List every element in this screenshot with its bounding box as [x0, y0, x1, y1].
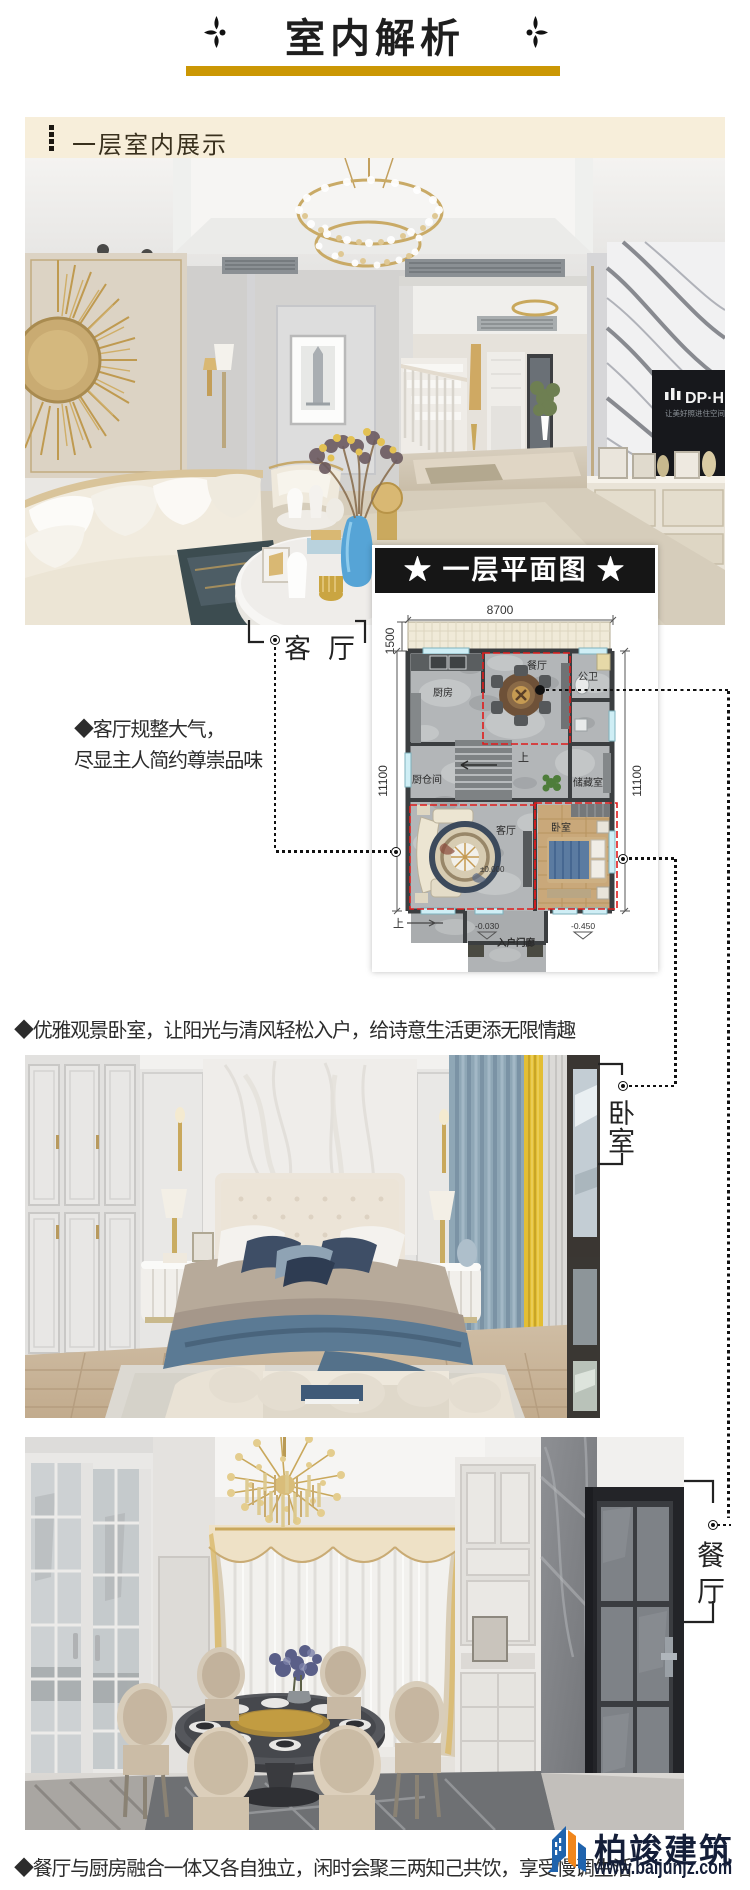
svg-text:入户门廊: 入户门廊 — [496, 937, 536, 949]
svg-text:上: 上 — [518, 751, 529, 764]
svg-text:DP·H: DP·H — [685, 390, 724, 407]
svg-text:客厅: 客厅 — [496, 824, 516, 837]
svg-text:厨房: 厨房 — [433, 686, 453, 699]
svg-text:上: 上 — [393, 917, 404, 930]
svg-text:-0.450: -0.450 — [571, 921, 595, 931]
svg-text:卧室: 卧室 — [551, 821, 571, 834]
svg-text:11100: 11100 — [630, 765, 644, 797]
svg-text:-0.030: -0.030 — [475, 921, 499, 931]
svg-text:1500: 1500 — [383, 627, 397, 654]
svg-text:公卫: 公卫 — [578, 672, 598, 683]
svg-text:8700: 8700 — [487, 603, 514, 617]
svg-text:餐厅: 餐厅 — [527, 659, 547, 672]
svg-text:厨仓间: 厨仓间 — [412, 773, 442, 786]
svg-text:11100: 11100 — [376, 765, 390, 797]
svg-text:±0.000: ±0.000 — [480, 865, 505, 874]
svg-text:让美好照进住空间: 让美好照进住空间 — [665, 408, 725, 418]
svg-text:储藏室: 储藏室 — [573, 776, 603, 789]
